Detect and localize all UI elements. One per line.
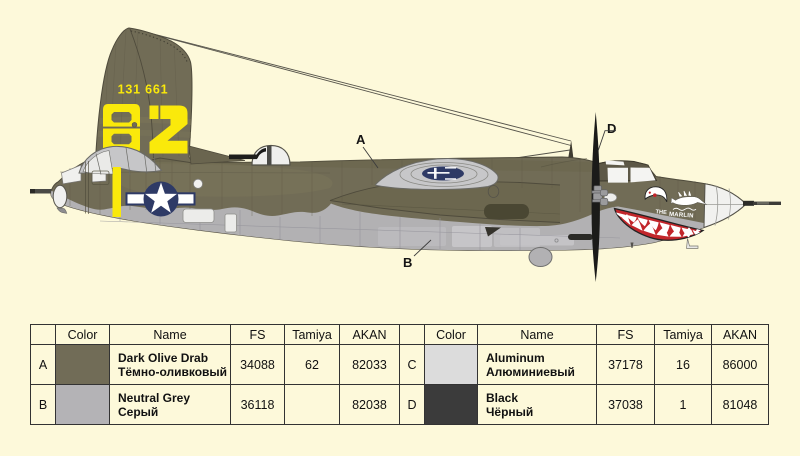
svg-text:D: D (607, 121, 616, 136)
svg-text:B: B (403, 255, 412, 270)
svg-text:A: A (356, 132, 366, 147)
svg-text:THE: THE (655, 209, 667, 216)
svg-text:131 661: 131 661 (118, 83, 169, 97)
